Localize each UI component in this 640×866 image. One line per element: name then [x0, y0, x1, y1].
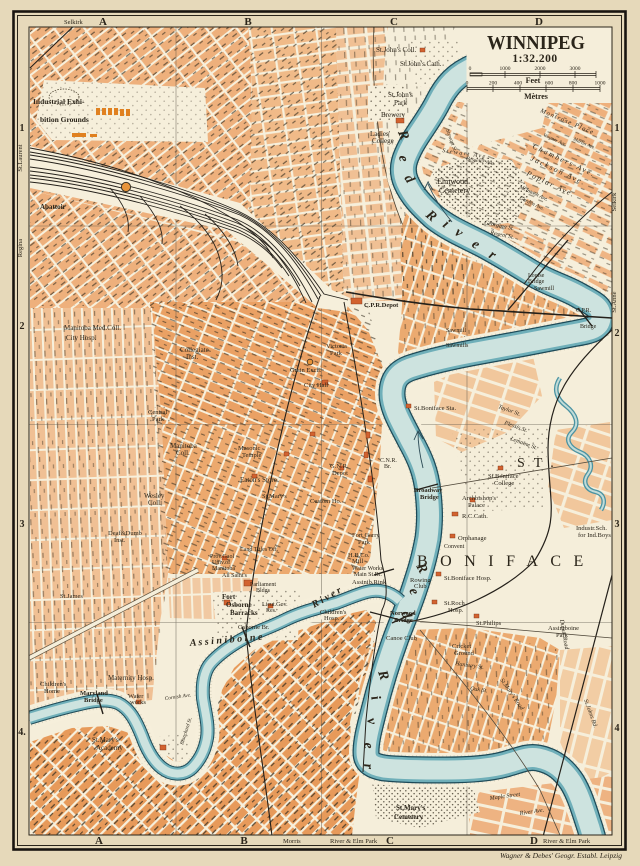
- svg-text:Fort: Fort: [222, 593, 236, 601]
- svg-text:800: 800: [569, 81, 578, 87]
- svg-text:Maternity Hosp.: Maternity Hosp.: [108, 674, 154, 682]
- svg-text:Archbishop's: Archbishop's: [462, 495, 497, 502]
- svg-text:Selkirk: Selkirk: [64, 19, 84, 26]
- svg-text:Park: Park: [358, 539, 371, 546]
- svg-text:Univ.of: Univ.of: [212, 559, 230, 566]
- svg-text:C: C: [386, 835, 394, 847]
- svg-text:C.P.R.Depot: C.P.R.Depot: [364, 302, 399, 309]
- svg-text:ST.: ST.: [517, 456, 563, 471]
- svg-text:A: A: [99, 16, 107, 28]
- svg-text:2: 2: [615, 328, 620, 339]
- svg-text:Eaton's Store: Eaton's Store: [240, 476, 277, 484]
- svg-text:2000: 2000: [535, 66, 546, 72]
- svg-text:Convent: Convent: [444, 544, 465, 550]
- svg-text:St.John's: St.John's: [388, 91, 413, 99]
- svg-text:Central: Central: [148, 409, 167, 416]
- svg-text:Orphanage: Orphanage: [458, 535, 487, 542]
- svg-text:Hosp.: Hosp.: [324, 615, 340, 622]
- svg-text:Sawmill: Sawmill: [446, 328, 466, 334]
- svg-text:River & Elm Park: River & Elm Park: [543, 838, 591, 845]
- svg-text:Industr.Sch.: Industr.Sch.: [576, 525, 607, 532]
- svg-text:St.Roch: St.Roch: [444, 600, 466, 607]
- svg-text:St.James: St.James: [60, 593, 83, 600]
- svg-text:Hosp.: Hosp.: [448, 607, 464, 614]
- svg-text:Cricket: Cricket: [452, 643, 471, 650]
- svg-text:College: College: [372, 137, 394, 145]
- svg-text:Grain Exch.: Grain Exch.: [290, 367, 322, 374]
- svg-text:Park: Park: [330, 350, 343, 357]
- svg-text:St.Mary's: St.Mary's: [262, 493, 287, 500]
- svg-text:St.Boniface Sta.: St.Boniface Sta.: [414, 405, 456, 412]
- svg-text:400: 400: [514, 81, 523, 87]
- svg-text:1000: 1000: [595, 81, 606, 87]
- svg-text:Sawmill: Sawmill: [534, 286, 554, 292]
- svg-text:St.Mary's: St.Mary's: [92, 736, 119, 744]
- svg-text:Ground: Ground: [454, 650, 475, 657]
- svg-text:1:32.200: 1:32.200: [512, 53, 557, 65]
- svg-text:St.Laurent: St.Laurent: [17, 144, 24, 171]
- svg-text:D: D: [535, 16, 543, 28]
- svg-text:B: B: [244, 16, 252, 28]
- svg-text:St.Boniface Hosp.: St.Boniface Hosp.: [444, 575, 492, 582]
- svg-text:Academy: Academy: [96, 744, 123, 752]
- svg-text:Inst.: Inst.: [186, 353, 199, 361]
- svg-text:Abattoir: Abattoir: [40, 203, 66, 211]
- svg-text:Bridge: Bridge: [420, 494, 439, 501]
- svg-text:Main St.Br.: Main St.Br.: [354, 572, 382, 578]
- svg-text:Custom Ho.: Custom Ho.: [310, 498, 342, 505]
- svg-text:600: 600: [545, 81, 554, 87]
- svg-text:3000: 3000: [570, 66, 581, 72]
- svg-text:G.N.R.: G.N.R.: [330, 463, 349, 470]
- svg-text:St.John's Coll.: St.John's Coll.: [376, 46, 417, 54]
- svg-text:2: 2: [20, 321, 25, 332]
- svg-text:Depot: Depot: [332, 470, 348, 477]
- svg-text:Cemetery: Cemetery: [394, 813, 424, 821]
- svg-text:Maryland: Maryland: [80, 690, 108, 697]
- svg-text:1: 1: [615, 123, 620, 134]
- svg-text:Sawmills: Sawmills: [446, 343, 469, 349]
- svg-text:R.C.Cath.: R.C.Cath.: [462, 513, 488, 520]
- svg-text:Regina: Regina: [17, 239, 24, 258]
- svg-text:D: D: [530, 835, 538, 847]
- svg-text:Industrial Exhi-: Industrial Exhi-: [33, 97, 85, 106]
- svg-text:for Ind.Boys: for Ind.Boys: [578, 532, 611, 539]
- svg-text:Brewery: Brewery: [381, 111, 406, 119]
- svg-text:3: 3: [20, 519, 25, 530]
- svg-text:Club: Club: [414, 583, 427, 590]
- svg-text:Mètres: Mètres: [524, 92, 548, 101]
- svg-text:Bldgs: Bldgs: [256, 588, 271, 594]
- svg-text:Masonic: Masonic: [238, 445, 261, 452]
- svg-text:St.Boniface: St.Boniface: [488, 473, 519, 480]
- svg-text:Wagner & Debes' Geogr. Establ.: Wagner & Debes' Geogr. Establ. Leipzig: [500, 851, 622, 860]
- svg-text:200: 200: [489, 81, 498, 87]
- svg-text:0: 0: [469, 66, 472, 72]
- svg-text:Canoe Club: Canoe Club: [386, 635, 417, 642]
- svg-text:Park: Park: [394, 99, 407, 107]
- svg-text:1: 1: [20, 123, 25, 134]
- svg-text:St.John's Cath.: St.John's Cath.: [400, 60, 442, 68]
- svg-text:Inst.: Inst.: [114, 537, 126, 544]
- svg-text:Res.: Res.: [266, 608, 277, 614]
- svg-text:City Hosp.: City Hosp.: [66, 334, 97, 342]
- svg-text:Morris: Morris: [283, 838, 301, 845]
- svg-text:Coll.: Coll.: [176, 449, 190, 457]
- svg-text:Barracks: Barracks: [230, 609, 258, 617]
- svg-text:Temple: Temple: [242, 452, 262, 459]
- svg-text:4: 4: [615, 723, 620, 734]
- svg-text:C: C: [390, 16, 398, 28]
- svg-text:Home: Home: [44, 688, 60, 695]
- svg-text:City Hall: City Hall: [304, 382, 328, 389]
- svg-text:A: A: [95, 835, 103, 847]
- svg-text:Norwood: Norwood: [390, 610, 416, 617]
- svg-text:All Saint's: All Saint's: [222, 573, 248, 579]
- svg-text:St.Philips: St.Philips: [476, 620, 502, 627]
- svg-text:Bridge: Bridge: [394, 617, 413, 624]
- svg-text:College: College: [494, 480, 514, 487]
- svg-text:4.: 4.: [18, 727, 26, 738]
- svg-text:Osborne: Osborne: [226, 601, 252, 609]
- svg-text:Manitoba: Manitoba: [212, 566, 235, 572]
- svg-text:Osborne Br.: Osborne Br.: [238, 624, 270, 631]
- svg-text:works: works: [130, 699, 146, 706]
- svg-text:1000: 1000: [500, 66, 511, 72]
- svg-text:Assinib.Rink: Assinib.Rink: [352, 579, 387, 586]
- svg-text:BONIFACE: BONIFACE: [417, 553, 596, 570]
- svg-text:Children's: Children's: [40, 681, 67, 688]
- svg-text:St.Anne: St.Anne: [611, 291, 618, 312]
- svg-text:Coll.: Coll.: [148, 499, 162, 507]
- svg-text:Bridge: Bridge: [84, 697, 103, 704]
- svg-text:B: B: [240, 835, 248, 847]
- svg-text:Selkirk: Selkirk: [611, 192, 618, 212]
- svg-text:C.P.R.: C.P.R.: [576, 308, 592, 314]
- svg-text:3: 3: [615, 519, 620, 530]
- svg-text:Broadway: Broadway: [414, 487, 443, 494]
- svg-text:Bridge: Bridge: [528, 279, 545, 285]
- svg-text:Mill: Mill: [352, 558, 363, 565]
- svg-text:Feet: Feet: [526, 76, 541, 85]
- svg-text:Br.: Br.: [384, 464, 392, 470]
- svg-text:WINNIPEG: WINNIPEG: [487, 32, 585, 54]
- svg-text:St.Mary's: St.Mary's: [396, 804, 426, 812]
- svg-text:Bridge: Bridge: [580, 324, 597, 330]
- svg-text:0: 0: [466, 81, 469, 87]
- svg-text:Park: Park: [152, 416, 165, 423]
- svg-text:Fort Garry: Fort Garry: [352, 532, 380, 539]
- svg-text:bition Grounds: bition Grounds: [40, 115, 89, 124]
- svg-text:Manitoba Med.Coll.: Manitoba Med.Coll.: [64, 324, 121, 332]
- svg-text:River & Elm Park: River & Elm Park: [330, 838, 378, 845]
- svg-text:Cemetery: Cemetery: [439, 186, 470, 195]
- svg-text:Elmwood: Elmwood: [437, 177, 468, 186]
- svg-text:Land Titles Off.: Land Titles Off.: [240, 546, 279, 553]
- svg-text:Victoria: Victoria: [326, 343, 347, 350]
- svg-text:Palace: Palace: [468, 502, 485, 509]
- svg-text:Deaf&Dumb: Deaf&Dumb: [108, 530, 142, 537]
